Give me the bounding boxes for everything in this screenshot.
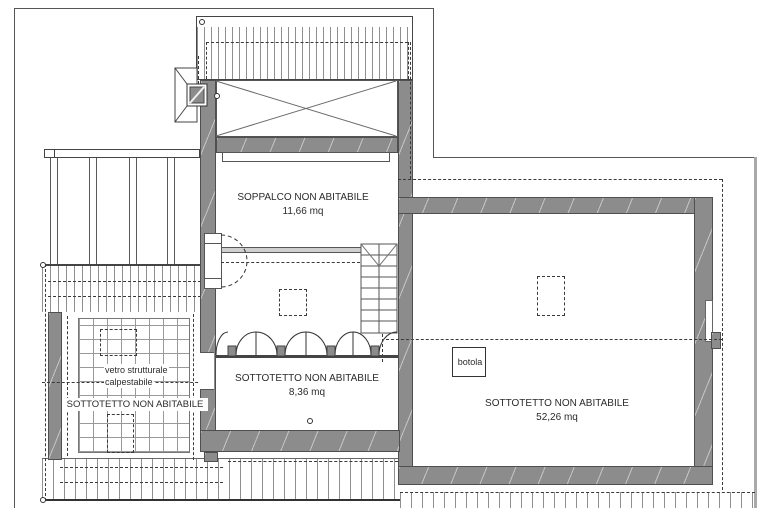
wall-bigroom-bottom (398, 466, 713, 485)
room-area-sottotetto-right: 52,26 mq (447, 411, 667, 424)
roof-outline-dash (67, 316, 68, 456)
void-opening (216, 80, 398, 137)
survey-point-marker (214, 93, 220, 99)
skylight-dashed-marker (537, 276, 565, 316)
roof-outline-dash (206, 42, 408, 43)
border-step-vertical (433, 8, 434, 158)
room-label-sottotetto-right: SOTTOTETTO NON ABITABILE (447, 397, 667, 410)
skylight-dashed-marker (100, 329, 137, 356)
terrace-roof-hatch (197, 27, 411, 79)
section-line-dash (386, 339, 722, 340)
roof-outline-dash (408, 42, 409, 79)
pergola-post (50, 158, 58, 264)
eaves-strip-left (42, 458, 400, 501)
pergola-top-beam (44, 149, 200, 158)
room-label-soppalco: SOPPALCO NON ABITABILE (193, 191, 413, 204)
room-area-soppalco: 11,66 mq (193, 205, 413, 218)
border-top (14, 8, 434, 9)
soppalco-edge-band (221, 247, 364, 253)
hatch-door-box: botola (452, 347, 486, 377)
room-label-sottotetto-left: SOTTOTETTO NON ABITABILE (62, 398, 208, 411)
section-line-dash (382, 244, 383, 362)
section-line-dash (198, 56, 199, 84)
wall-middle-left-stub (204, 452, 218, 462)
survey-point-marker (199, 19, 205, 25)
section-line-dash (221, 262, 365, 263)
pergola-beam-cap (44, 149, 55, 158)
roof-outline-dash (48, 281, 206, 282)
wall-middle-bottom (200, 430, 400, 452)
hatch-door-label: botola (453, 356, 487, 369)
roof-outline-dash (60, 482, 223, 483)
roof-outline-dash (228, 461, 398, 462)
eaves-strip-upper-left (42, 264, 210, 312)
soppalco-balustrade (222, 152, 390, 162)
room-area-sottotetto-center: 8,36 mq (197, 386, 417, 399)
eaves-strip-right (400, 492, 755, 508)
pergola-post (89, 158, 97, 264)
roof-outline-dash (722, 179, 723, 490)
door-frame-cap (204, 233, 222, 244)
border-left (14, 8, 15, 508)
pergola-post (167, 158, 175, 264)
border-step-horizontal (433, 157, 756, 158)
glass-floor-note-line2: calpestabile (104, 376, 154, 388)
roof-outline-dash (193, 314, 194, 460)
border-right (754, 157, 757, 508)
roof-outline-dash (398, 179, 722, 180)
wall-right-step (711, 332, 721, 349)
room-label-sottotetto-center: SOTTOTETTO NON ABITABILE (197, 372, 417, 385)
pergola-post (129, 158, 137, 264)
roof-outline-dash (206, 42, 207, 79)
survey-point-marker (307, 418, 313, 424)
wall-bigroom-top (398, 197, 713, 214)
glass-floor-note-line1: vetro strutturale (104, 364, 169, 376)
soppalco-floor-band (216, 137, 398, 153)
floor-plan-canvas: botola SOPPALCO NON ABITABILE 11,66 mq S… (0, 0, 762, 508)
skylight-dashed-marker (279, 289, 307, 316)
door-swing-arc (221, 235, 247, 287)
stairs (361, 244, 397, 333)
roof-outline-dash (60, 467, 223, 468)
skylight-dashed-marker (107, 414, 134, 453)
roof-outline-dash (410, 42, 411, 179)
folding-door-arcs (216, 332, 398, 358)
roof-outline-dash (48, 296, 206, 297)
wall-left-block (48, 312, 62, 460)
door-frame-cap (204, 278, 222, 289)
